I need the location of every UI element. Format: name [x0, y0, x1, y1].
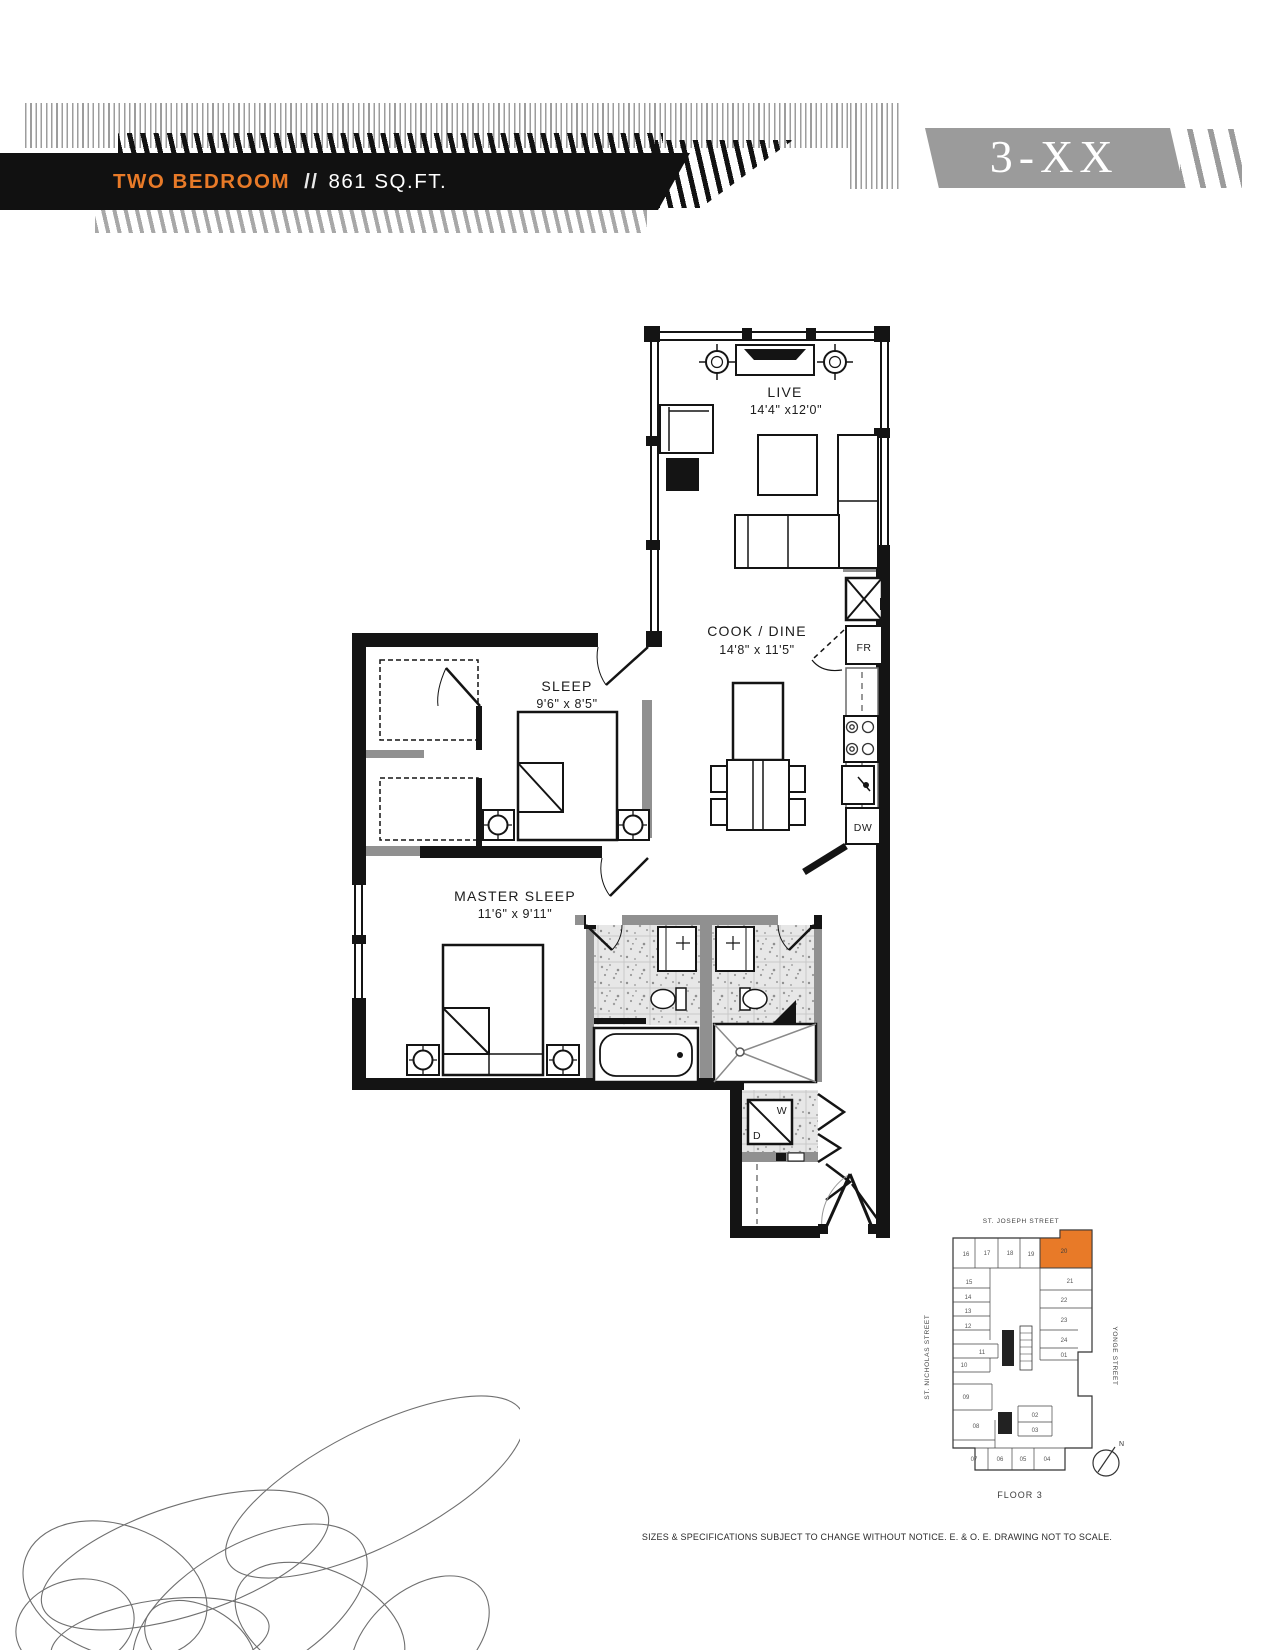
unit-06: 06	[997, 1457, 1004, 1463]
unit-08: 08	[973, 1424, 980, 1430]
bed	[518, 712, 617, 840]
floor-number-label: FLOOR 3	[920, 1490, 1120, 1500]
header-black-hatch	[118, 133, 663, 153]
header-vertical-hatch-right	[850, 103, 902, 189]
bifold-door	[818, 1094, 844, 1130]
unit-15: 15	[966, 1280, 973, 1286]
unit-07: 07	[971, 1457, 978, 1463]
key-plan: ST. JOSEPH STREET ST. NICHOLAS STREET YO…	[870, 1200, 1130, 1510]
bifold-door	[818, 1134, 840, 1162]
bed	[443, 945, 543, 1075]
unit-19: 19	[1028, 1252, 1035, 1258]
unit-18: 18	[1007, 1251, 1014, 1257]
shower-drain	[736, 1048, 744, 1056]
kitchen	[804, 578, 886, 872]
chair	[789, 799, 805, 825]
unit-21: 21	[1067, 1279, 1074, 1285]
sleep-door	[606, 647, 648, 685]
sink	[842, 766, 874, 804]
unit-17: 17	[984, 1251, 991, 1257]
entry-door	[824, 1174, 850, 1232]
plan-area-label: 861 SQ.FT.	[328, 170, 447, 193]
unit-22: 22	[1061, 1298, 1068, 1304]
fridge-label: FR	[857, 642, 872, 654]
unit-number-label: 3-XX	[932, 128, 1177, 186]
armchair	[660, 405, 713, 453]
dining-table	[727, 760, 789, 830]
sleep-bedroom	[380, 647, 649, 840]
closet	[380, 778, 478, 840]
room-dims-sleep: 9'6" x 8'5"	[536, 697, 597, 711]
room-dims-cookdine: 14'8" x 11'5"	[719, 643, 794, 657]
unit-13: 13	[965, 1309, 972, 1315]
decorative-scribble	[0, 1390, 520, 1650]
chair	[711, 766, 727, 792]
unit-05: 05	[1020, 1457, 1027, 1463]
floor-plan-drawing: LIVE 14'4" x12'0" COOK / DINE 14'8" x 11…	[340, 300, 900, 1260]
unit-23: 23	[1061, 1318, 1068, 1324]
unit-tag-stripes	[1180, 129, 1242, 188]
street-right-label: YONGE STREET	[1111, 1326, 1118, 1385]
unit-16: 16	[963, 1252, 970, 1258]
washer-label: W	[777, 1105, 787, 1117]
north-arrow-icon: N	[1093, 1441, 1124, 1476]
unit-03: 03	[1032, 1428, 1039, 1434]
closet	[380, 660, 478, 740]
master-door	[610, 858, 648, 896]
toilet	[743, 990, 767, 1009]
island-dining	[711, 683, 805, 830]
unit-02: 02	[1032, 1413, 1039, 1419]
unit-04: 04	[1044, 1457, 1051, 1463]
room-label-sleep: SLEEP	[541, 678, 592, 694]
north-label: N	[1119, 1441, 1124, 1448]
vanity	[658, 927, 696, 971]
dryer-label: D	[753, 1130, 761, 1142]
unit-12: 12	[965, 1324, 972, 1330]
window-walls	[355, 330, 890, 1000]
live-room-furniture	[660, 344, 878, 568]
vanity	[716, 927, 754, 971]
plan-type-label: TWO BEDROOM	[113, 170, 290, 193]
unit-14: 14	[965, 1295, 972, 1301]
chair	[711, 799, 727, 825]
unit-09: 09	[963, 1395, 970, 1401]
title-banner: TWO BEDROOM//861 SQ.FT.	[0, 153, 690, 210]
unit-20: 20	[1061, 1249, 1068, 1255]
toilet	[651, 990, 675, 1009]
kitchen-island	[733, 683, 783, 760]
tv-icon	[744, 349, 806, 360]
room-label-cookdine: COOK / DINE	[707, 623, 807, 639]
ceiling-light-icon	[699, 344, 735, 380]
room-dims-live: 14'4" x12'0"	[750, 403, 822, 417]
unit-10: 10	[961, 1363, 968, 1369]
d-washer-label: DW	[854, 822, 873, 834]
side-table	[666, 458, 699, 491]
room-dims-master: 11'6" x 9'11"	[478, 907, 553, 921]
unit-24: 24	[1061, 1338, 1068, 1344]
ceiling-light-icon	[817, 344, 853, 380]
street-left-label: ST. NICHOLAS STREET	[924, 1314, 931, 1399]
shower	[714, 1024, 816, 1082]
chair	[789, 766, 805, 792]
unit-01: 01	[1061, 1353, 1068, 1359]
coffee-table	[758, 435, 817, 495]
closet-door	[446, 668, 480, 706]
floorplan-page: TWO BEDROOM//861 SQ.FT. 3-XX	[0, 0, 1275, 1650]
room-label-live: LIVE	[767, 384, 802, 400]
room-label-master: MASTER SLEEP	[454, 888, 576, 904]
unit-number-tag: 3-XX	[925, 128, 1184, 188]
street-top-label: ST. JOSEPH STREET	[983, 1218, 1060, 1225]
unit-11: 11	[979, 1350, 986, 1356]
title-separator: //	[304, 170, 318, 193]
disclaimer-text: SIZES & SPECIFICATIONS SUBJECT TO CHANGE…	[577, 1532, 1177, 1542]
